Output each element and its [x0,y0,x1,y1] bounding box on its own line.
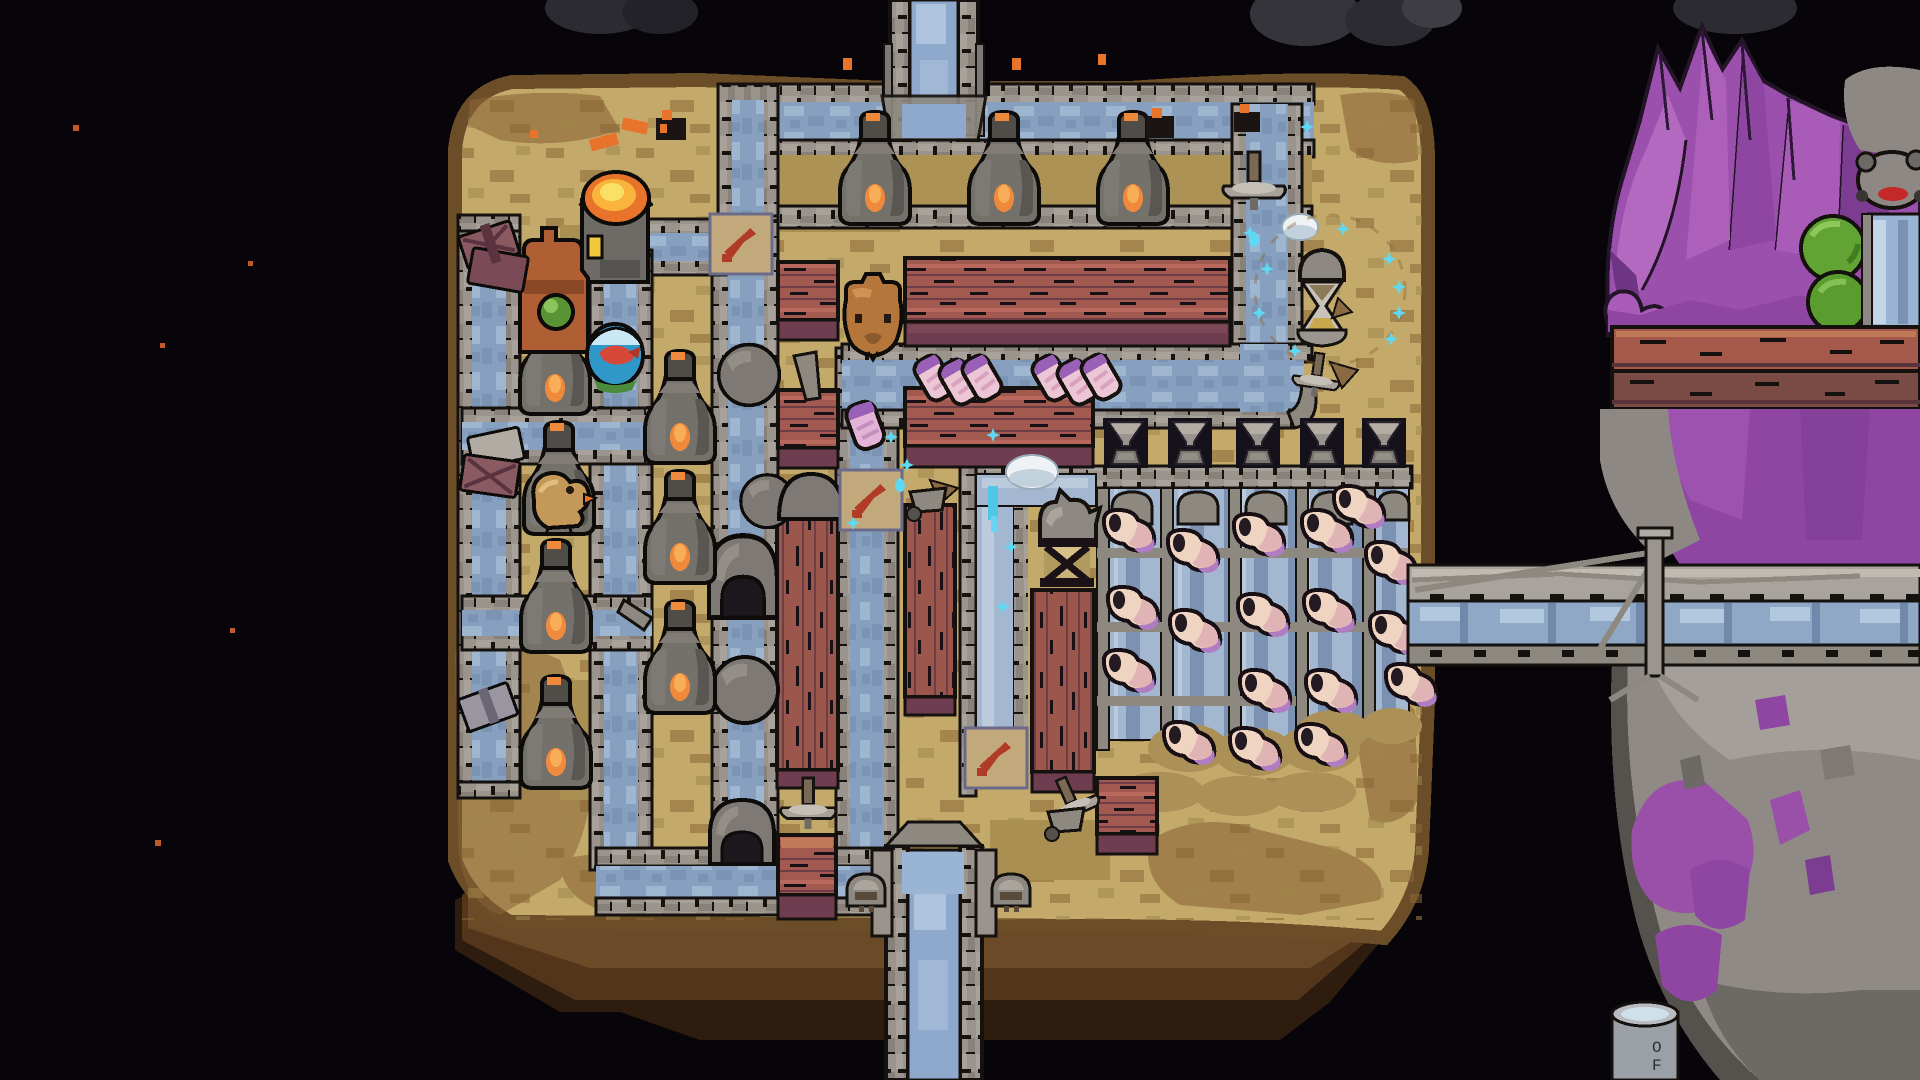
svg-text:F: F [1652,1057,1662,1075]
svg-text:O: O [1652,1039,1662,1057]
